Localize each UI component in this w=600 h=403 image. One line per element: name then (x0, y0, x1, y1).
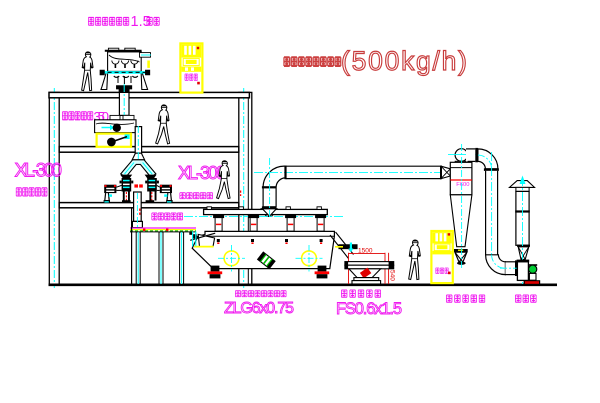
svg-text:XL-300: XL-300 (15, 161, 63, 182)
svg-text:(500kg/h): (500kg/h) (341, 46, 467, 76)
svg-text:FS0.6x1.5: FS0.6x1.5 (336, 300, 402, 318)
svg-text:1.5: 1.5 (131, 14, 151, 30)
svg-text:1500: 1500 (358, 247, 373, 254)
svg-text:XL-300: XL-300 (178, 163, 226, 183)
svg-text:540: 540 (389, 270, 396, 281)
svg-text:F600: F600 (456, 182, 469, 188)
svg-text:ZLG6x0.75: ZLG6x0.75 (224, 300, 294, 317)
